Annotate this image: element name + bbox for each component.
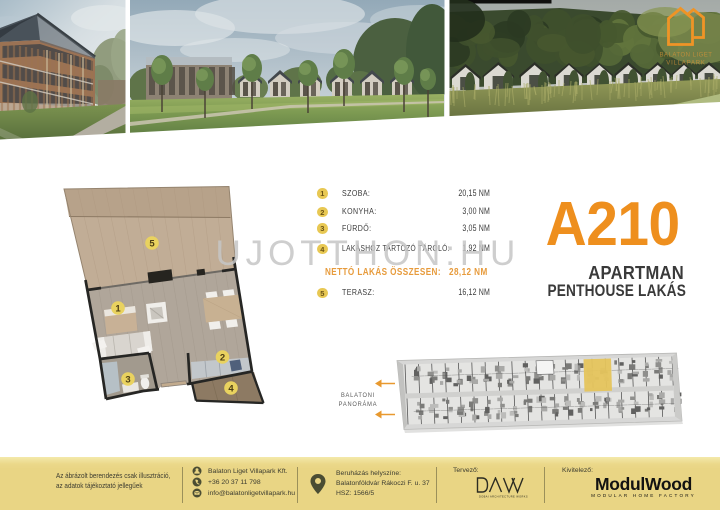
svg-text:5: 5 bbox=[149, 238, 155, 249]
svg-text:3: 3 bbox=[125, 374, 130, 385]
svg-text:DOBAI ARCHITECTURE WORKS: DOBAI ARCHITECTURE WORKS bbox=[479, 495, 528, 499]
svg-text:4: 4 bbox=[228, 383, 234, 394]
svg-text:2: 2 bbox=[220, 352, 225, 363]
svg-text:1: 1 bbox=[115, 303, 121, 314]
